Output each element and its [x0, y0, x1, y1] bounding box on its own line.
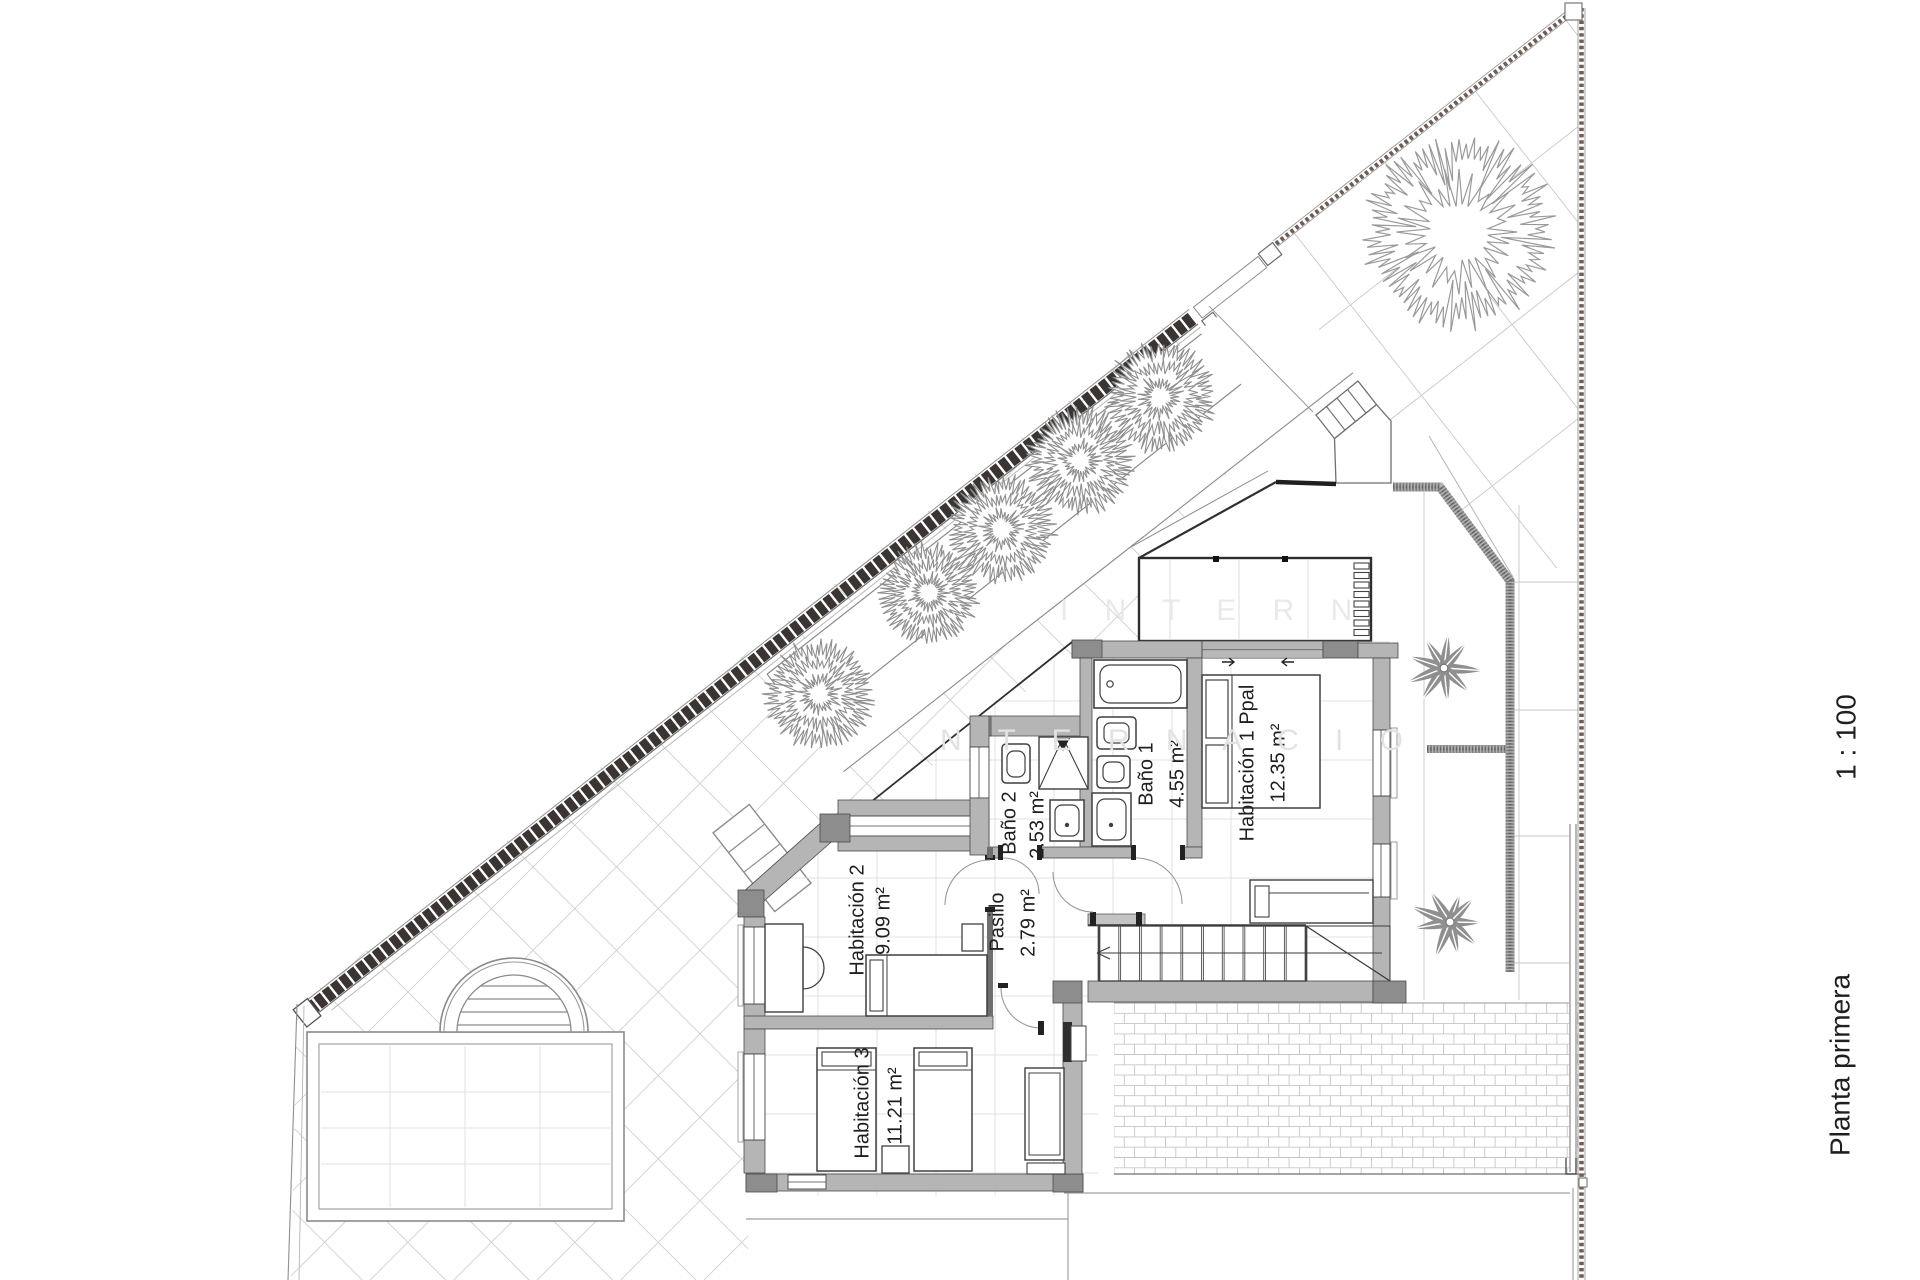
svg-text:Planta primera: Planta primera — [1824, 974, 1855, 1157]
svg-text:11.21 m²: 11.21 m² — [884, 1067, 906, 1145]
svg-text:2.79 m²: 2.79 m² — [1017, 889, 1039, 957]
svg-text:Habitación 3: Habitación 3 — [851, 1047, 873, 1158]
svg-text:Habitación 2: Habitación 2 — [846, 864, 868, 975]
svg-text:Baño 2: Baño 2 — [998, 791, 1020, 854]
svg-text:1 : 100: 1 : 100 — [1830, 694, 1861, 780]
svg-text:I N T E R N: I N T E R N — [1060, 594, 1366, 627]
svg-text:9.09 m²: 9.09 m² — [872, 887, 894, 955]
svg-text:Habitación 1 Ppal: Habitación 1 Ppal — [1236, 685, 1258, 842]
svg-text:N T E R N A C I O: N T E R N A C I O — [940, 724, 1417, 757]
svg-text:Pasillo: Pasillo — [986, 893, 1008, 952]
svg-text:2.53 m²: 2.53 m² — [1026, 791, 1048, 859]
